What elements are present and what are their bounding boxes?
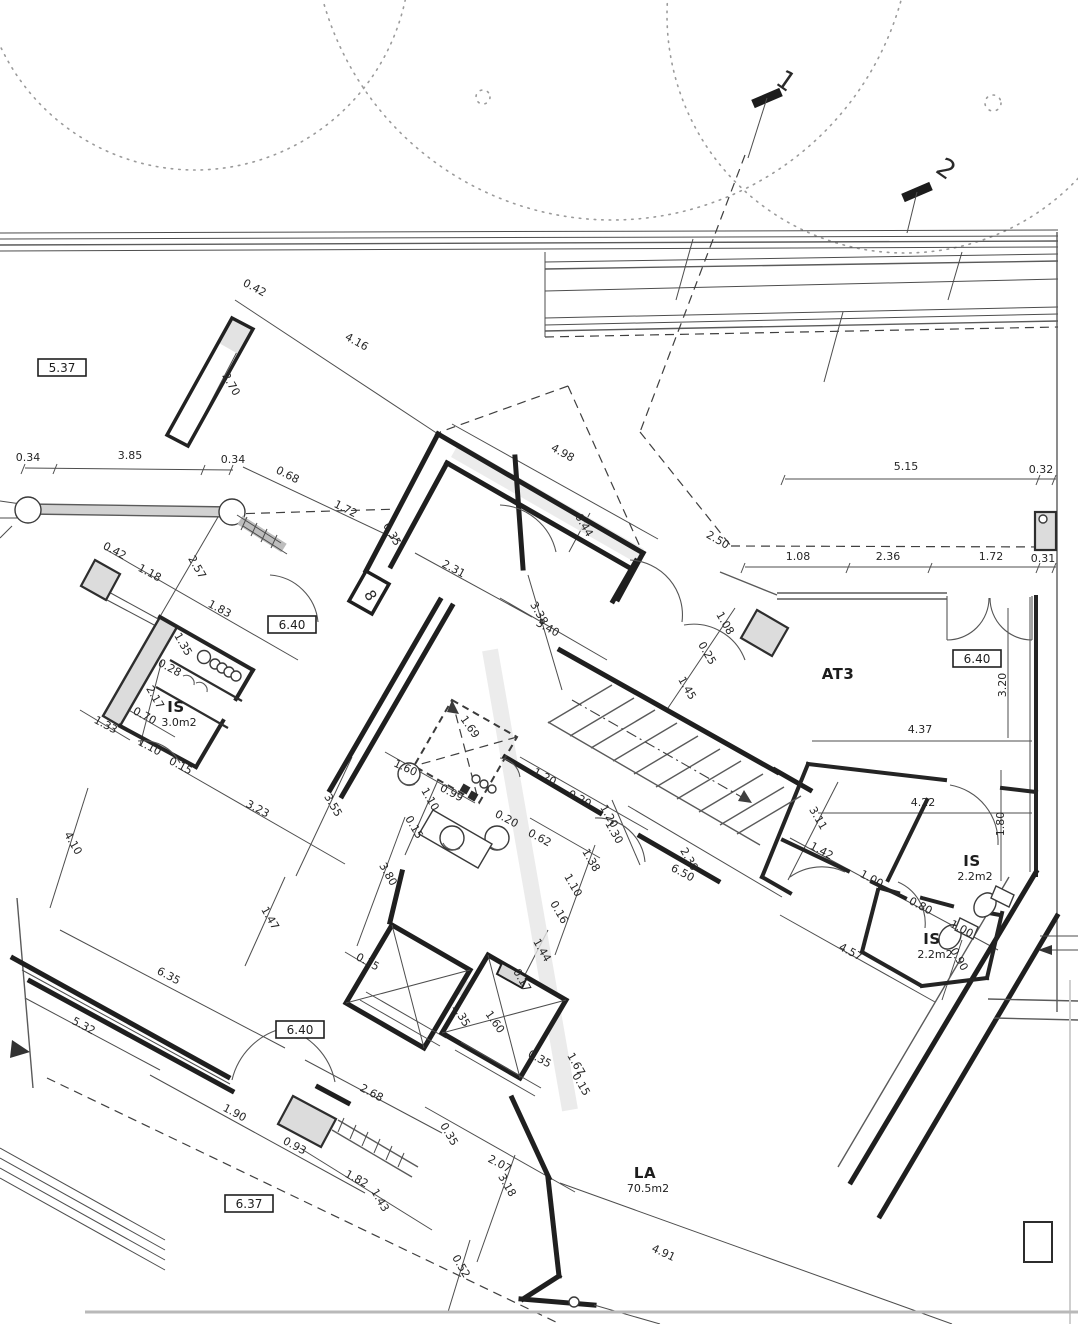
- dimension-label: 4.91: [650, 1242, 678, 1264]
- dimension-label: 0.35: [437, 1120, 461, 1148]
- dimension-label: 0.32: [1029, 463, 1054, 476]
- dimension-label: 4.10: [61, 829, 85, 857]
- room-area-label: 70.5m2: [627, 1182, 669, 1195]
- dimension-label: 1.08: [786, 550, 811, 563]
- dimension-label: 4.16: [343, 330, 371, 353]
- dimension-label: 0.52: [449, 1252, 473, 1280]
- dimension-label: 1.72: [979, 550, 1004, 563]
- dimension-label: 3.20: [996, 673, 1009, 698]
- dimension-label: 2.17: [143, 683, 167, 711]
- page-edges: [85, 980, 1078, 1324]
- room-label: IS: [923, 930, 940, 948]
- dimension-label: 0.42: [101, 539, 129, 562]
- section-marker-number: 2: [930, 152, 961, 186]
- dimension-label: 1.80: [994, 812, 1007, 837]
- dimension-label: 4.98: [549, 441, 577, 464]
- dimension-label: 0.34: [221, 453, 246, 466]
- dimension-label: 0.31: [1031, 552, 1056, 565]
- level-box-label: 6.37: [236, 1197, 263, 1211]
- dimension-label: 0.25: [695, 639, 719, 667]
- room-label: IS: [167, 698, 184, 716]
- room-label: AT3: [822, 665, 855, 683]
- section-marker-bars: [748, 92, 931, 233]
- dimension-label: 0.35: [526, 1047, 554, 1070]
- dimension-label: 6.35: [155, 964, 183, 987]
- tree-canopies: [0, 0, 1078, 253]
- level-box-label: 5.37: [49, 361, 76, 375]
- planter: [167, 318, 253, 446]
- section-marker-numbers: 12: [770, 64, 961, 186]
- floor-plan-canvas: 0.424.162.700.343.850.340.681.720.354.98…: [0, 0, 1078, 1324]
- level-box-label: 6.40: [287, 1023, 314, 1037]
- dimension-label: 1.83: [206, 597, 234, 620]
- dimension-label: 1.72: [332, 498, 360, 521]
- dimension-label: 1.82: [343, 1167, 371, 1190]
- dimension-label: 1.08: [713, 609, 737, 637]
- dimension-label: 3.85: [118, 449, 143, 462]
- bottom-left-road: [0, 898, 165, 1270]
- staircase: [548, 685, 801, 834]
- dimension-label: 0.42: [241, 276, 269, 299]
- dimension-label: 1.30: [602, 818, 626, 846]
- dimension-label: 1.43: [368, 1186, 392, 1214]
- dimension-label: 0.15: [402, 813, 426, 841]
- dimension-label: 0.68: [274, 464, 302, 487]
- dimension-label: 0.34: [16, 451, 41, 464]
- room-area-label: 3.0m2: [161, 716, 196, 729]
- room-label: IS: [963, 852, 980, 870]
- dimension-lines: [21, 300, 1056, 1324]
- dimension-label: 1.10: [136, 735, 164, 758]
- dimension-label: 3.40: [534, 616, 562, 639]
- dimension-label: 5.15: [894, 460, 919, 473]
- dimension-label: 1.18: [136, 561, 164, 584]
- dimension-label: 1.10: [418, 785, 442, 813]
- dimension-label: 3.18: [495, 1171, 519, 1199]
- dimension-label: 4.22: [911, 796, 936, 809]
- dimension-label: 1.10: [561, 871, 585, 899]
- room-label: LA: [634, 1164, 656, 1182]
- dimension-label: 3.11: [806, 804, 830, 832]
- dimension-label: 0.28: [156, 656, 184, 679]
- right-edge-marks: [988, 936, 1078, 1262]
- dimension-label: 3.23: [244, 797, 272, 820]
- room-area-label: 2.2m2: [917, 948, 952, 961]
- dimension-label: 2.36: [876, 550, 901, 563]
- room-area-label: 2.2m2: [957, 870, 992, 883]
- level-box-label: 6.40: [964, 652, 991, 666]
- dimension-label: 2.50: [704, 528, 732, 552]
- dimension-label: 0.99: [438, 781, 466, 804]
- level-box-label: 6.40: [279, 618, 306, 632]
- dimension-label: 1.38: [579, 846, 603, 874]
- dimension-label: 1.45: [675, 674, 699, 702]
- dimension-label: 0.15: [167, 754, 195, 777]
- dimension-label: 2.31: [440, 557, 468, 580]
- floor-plan: 0.424.162.700.343.850.340.681.720.354.98…: [0, 0, 1078, 1324]
- dimension-label: 4.37: [908, 723, 933, 736]
